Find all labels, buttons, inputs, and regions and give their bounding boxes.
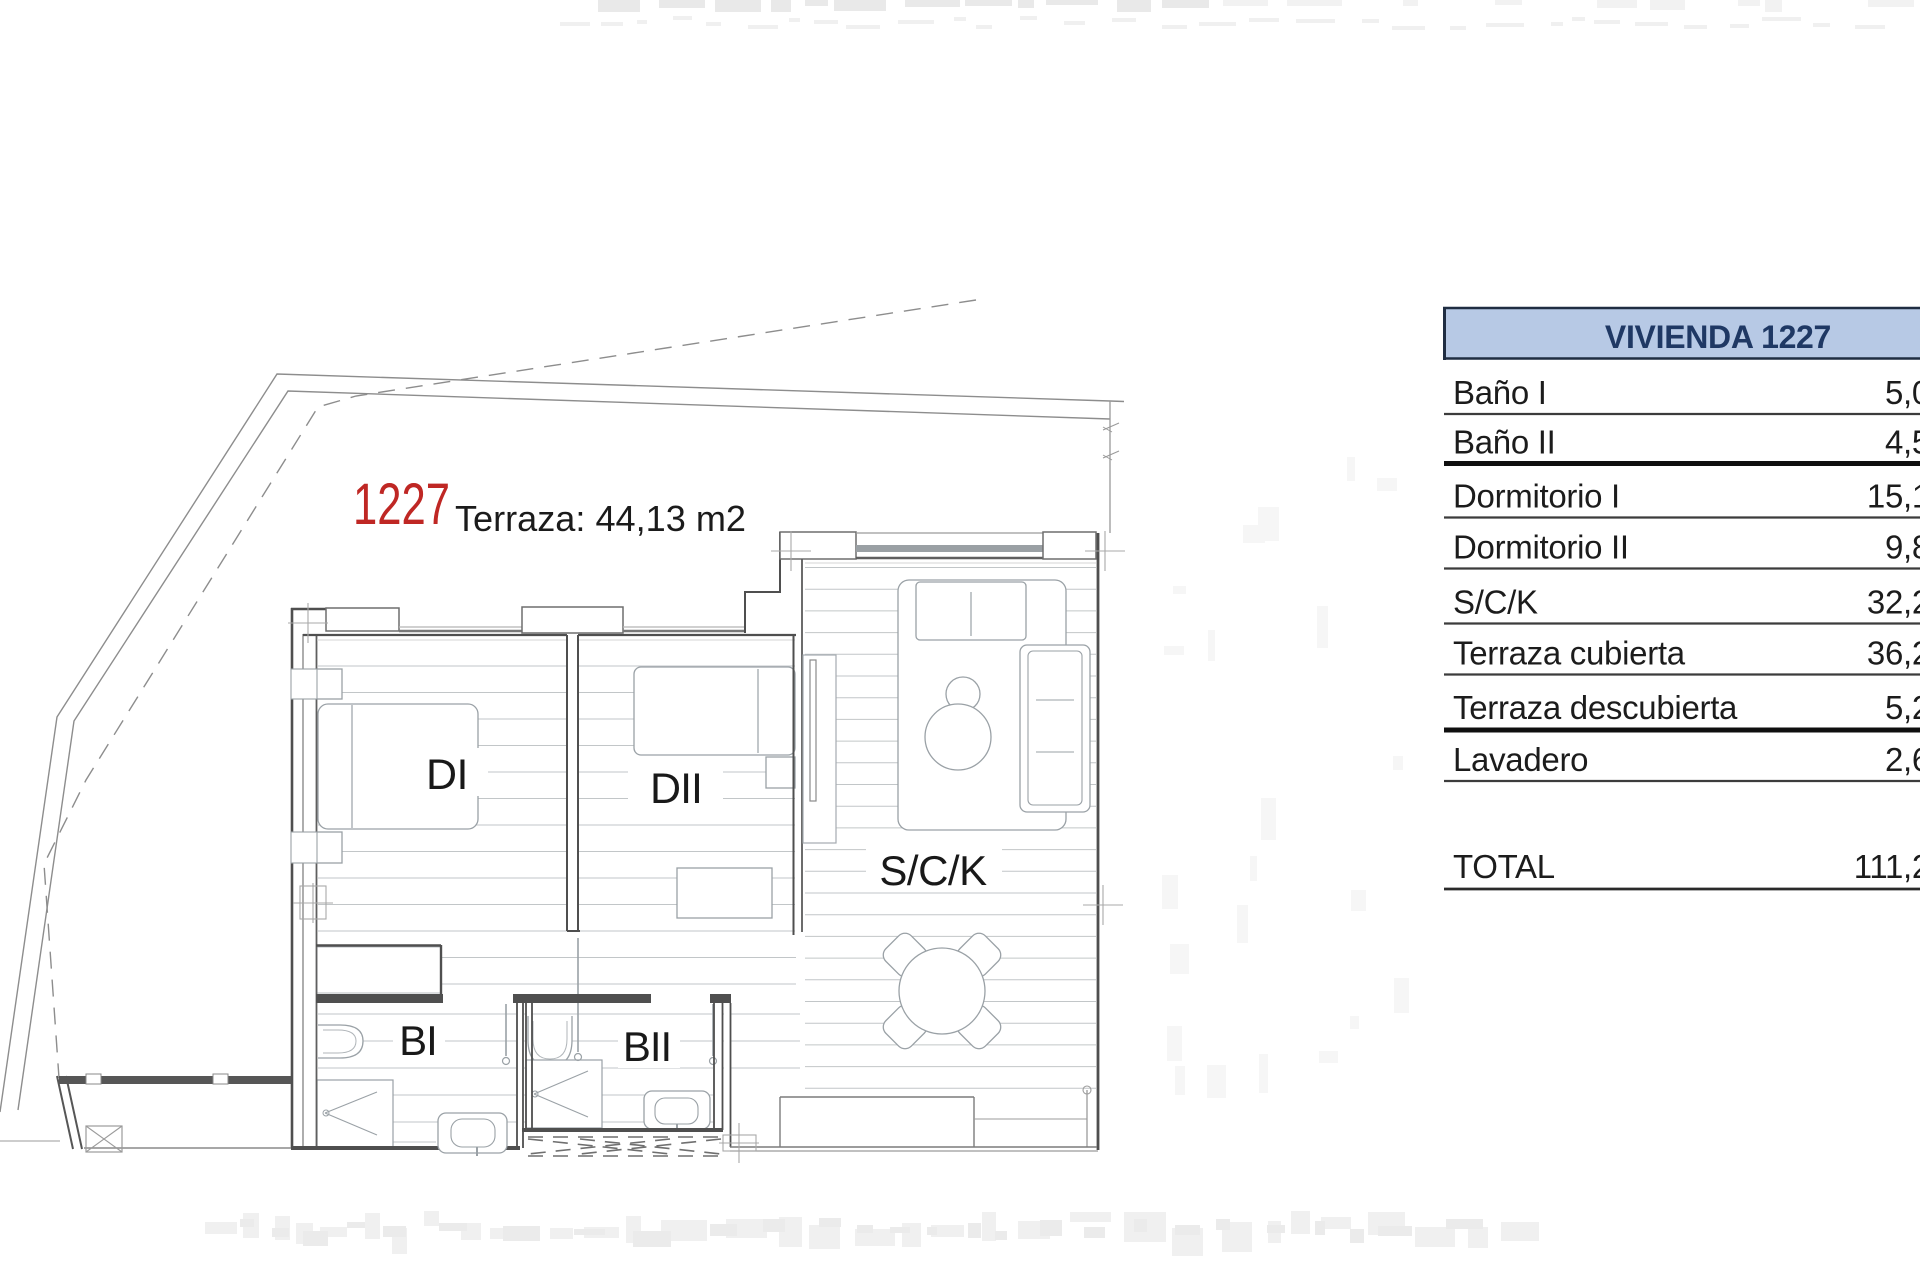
- svg-text:BII: BII: [623, 1023, 671, 1070]
- svg-text:Dormitorio II: Dormitorio II: [1453, 529, 1629, 566]
- svg-text:S/C/K: S/C/K: [879, 847, 987, 894]
- svg-text:S/C/K: S/C/K: [1453, 584, 1538, 621]
- svg-text:111,20: 111,20: [1854, 848, 1920, 885]
- svg-text:Terraza cubierta: Terraza cubierta: [1453, 635, 1686, 672]
- svg-text:Terraza descubierta: Terraza descubierta: [1453, 689, 1738, 726]
- svg-text:DI: DI: [426, 751, 468, 799]
- svg-text:DII: DII: [650, 765, 702, 813]
- svg-text:15,10: 15,10: [1867, 478, 1920, 515]
- svg-text:2,60: 2,60: [1885, 741, 1920, 778]
- svg-text:VIVIENDA 1227: VIVIENDA 1227: [1605, 319, 1831, 355]
- svg-text:9,80: 9,80: [1885, 529, 1920, 566]
- svg-text:1227: 1227: [353, 472, 450, 537]
- svg-text:Lavadero: Lavadero: [1453, 741, 1588, 778]
- svg-text:4,50: 4,50: [1885, 424, 1920, 461]
- svg-text:36,20: 36,20: [1867, 635, 1920, 672]
- svg-text:Baño II: Baño II: [1453, 424, 1555, 461]
- svg-text:Baño I: Baño I: [1453, 374, 1547, 411]
- svg-text:32,20: 32,20: [1867, 584, 1920, 621]
- svg-text:5,20: 5,20: [1885, 689, 1920, 726]
- svg-text:Dormitorio I: Dormitorio I: [1453, 478, 1620, 515]
- svg-text:5,00: 5,00: [1885, 374, 1920, 411]
- svg-text:BI: BI: [399, 1017, 437, 1064]
- svg-text:Terraza: 44,13 m2: Terraza: 44,13 m2: [455, 498, 746, 539]
- svg-text:TOTAL: TOTAL: [1453, 848, 1555, 885]
